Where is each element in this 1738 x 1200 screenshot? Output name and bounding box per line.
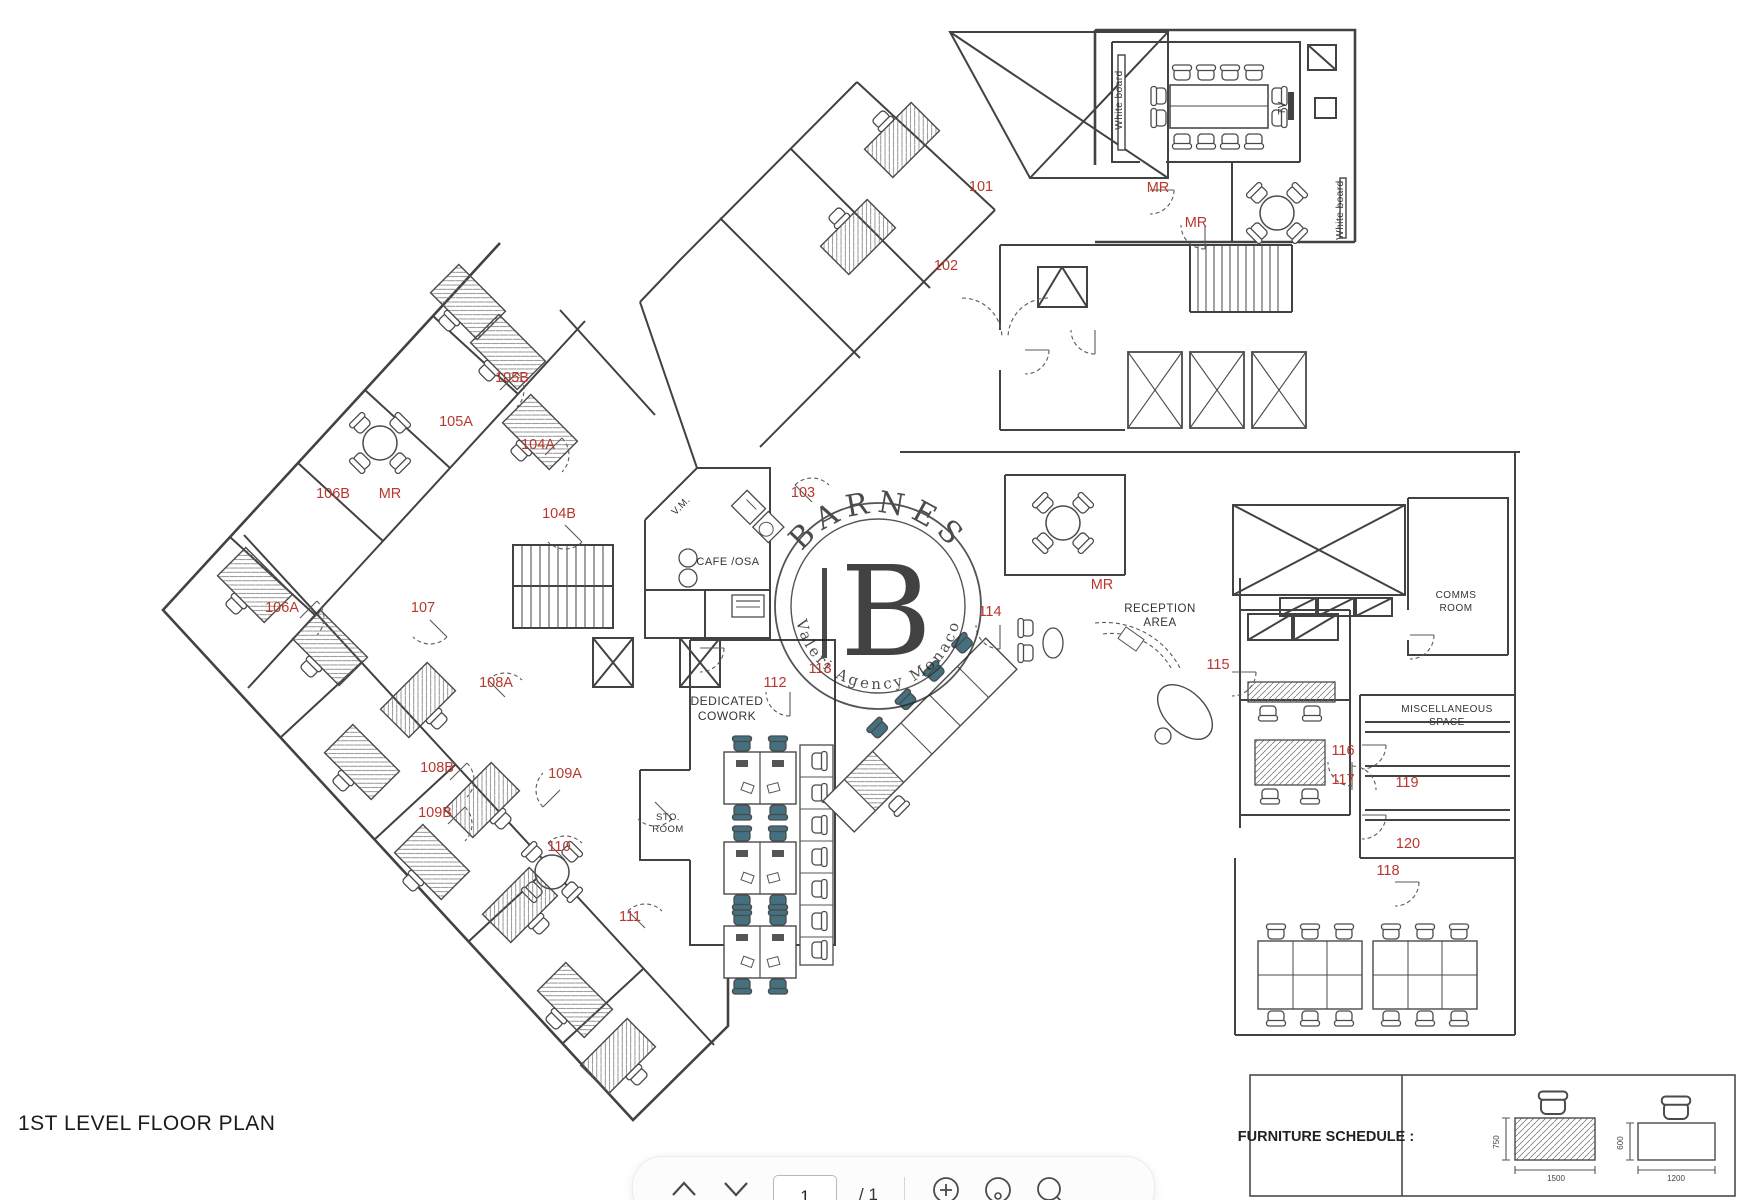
room-label-105a-5: 105A	[439, 414, 473, 430]
floor-plan-drawing: BARNES Valeri Agency Monaco B 1011021031…	[0, 0, 1738, 1200]
room-label-106b-8: 106B	[316, 486, 350, 502]
room-label-113-17: 113	[808, 661, 831, 677]
page-number-input[interactable]	[773, 1175, 837, 1200]
area-label-white-board-12: White board	[1114, 70, 1125, 129]
area-label-miscellaneous-9: MISCELLANEOUS	[1401, 704, 1493, 715]
page-title: 1ST LEVEL FLOOR PLAN	[18, 1112, 275, 1136]
room-label-mr-25: MR	[379, 486, 402, 502]
area-label-dedicated-2: DEDICATED	[691, 694, 764, 708]
chevron-up-icon	[669, 1175, 699, 1200]
room-label-120-24: 120	[1396, 836, 1420, 852]
desk1-width: 1500	[1547, 1174, 1565, 1183]
page-up-button[interactable]	[669, 1175, 699, 1200]
chevron-down-icon	[721, 1175, 751, 1200]
desk1-depth: 750	[1492, 1135, 1501, 1149]
room-label-116-20: 116	[1331, 743, 1354, 759]
desk2-depth: 600	[1616, 1136, 1625, 1150]
furniture-schedule-title: FURNITURE SCHEDULE :	[1238, 1129, 1414, 1145]
room-label-112-16: 112	[763, 675, 786, 691]
room-label-109b-13: 109B	[418, 805, 452, 821]
room-label-mr-27: MR	[1185, 215, 1208, 231]
room-label-108a-10: 108A	[479, 675, 513, 691]
area-label-cowork-3: COWORK	[698, 709, 756, 723]
area-label-sto--5: STO.	[656, 812, 680, 823]
room-label-104a-3: 104A	[521, 437, 555, 453]
area-label-room-6: ROOM	[652, 824, 684, 835]
room-label-104b-4: 104B	[542, 506, 576, 522]
room-label-111-15: 111	[619, 909, 641, 925]
zoom-in-button[interactable]	[931, 1175, 961, 1200]
room-label-117-21: 117	[1331, 772, 1354, 788]
area-label-cafe-osa-4: CAFE /OSA	[696, 556, 759, 568]
area-label-area-1: AREA	[1143, 617, 1176, 629]
page-total-label: / 1	[859, 1175, 878, 1200]
room-label-mr-28: MR	[1091, 577, 1114, 593]
area-label-v-m--11: V.M.	[670, 495, 693, 518]
room-label-119-23: 119	[1395, 775, 1418, 791]
toolbar-divider	[904, 1177, 905, 1200]
zoom-out-button[interactable]	[983, 1175, 1013, 1200]
room-label-105b-6: 105B	[495, 370, 529, 386]
desk2-width: 1200	[1667, 1174, 1685, 1183]
reception-desk	[1018, 619, 1222, 750]
viewer-toolbar: / 1	[632, 1156, 1155, 1200]
room-label-118-22: 118	[1376, 863, 1399, 879]
watermark-monogram: B	[840, 540, 932, 685]
area-label-reception-0: RECEPTION	[1124, 603, 1196, 615]
search-button[interactable]	[1035, 1175, 1065, 1200]
room-label-114-18: 114	[978, 604, 1001, 620]
area-label-tv-14: TV	[1277, 101, 1288, 115]
area-label-white-board-13: White board	[1335, 180, 1346, 239]
search-icon	[1035, 1175, 1065, 1200]
room-label-103-2: 103	[791, 485, 815, 501]
room-label-115-19: 115	[1206, 657, 1229, 673]
room-label-102-1: 102	[934, 258, 958, 274]
room-label-mr-26: MR	[1147, 180, 1170, 196]
room-label-109a-12: 109A	[548, 766, 582, 782]
area-label-space-10: SPACE	[1429, 717, 1465, 728]
area-label-room-8: ROOM	[1439, 603, 1472, 614]
room-label-101-0: 101	[969, 179, 993, 195]
room-label-110-14: 110	[547, 839, 570, 855]
area-label-comms-7: COMMS	[1436, 590, 1477, 601]
furniture-schedule: FURNITURE SCHEDULE : 750 1500 600 1200	[1238, 1075, 1735, 1196]
room-label-107-9: 107	[411, 600, 435, 616]
room-label-106a-7: 106A	[265, 600, 299, 616]
zoom-out-icon	[983, 1175, 1013, 1200]
page-down-button[interactable]	[721, 1175, 751, 1200]
zoom-in-icon	[931, 1175, 961, 1200]
room-label-108b-11: 108B	[420, 760, 454, 776]
